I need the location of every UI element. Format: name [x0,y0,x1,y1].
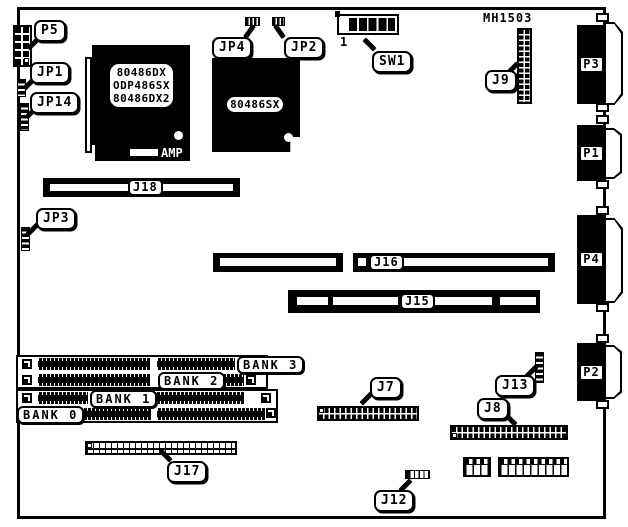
j12-pin1-cell [406,471,410,478]
p1-mount-tab-top [596,115,609,124]
callout-p5: P5 [34,20,66,42]
j18-label: J18 [128,179,163,196]
p3-port-label: P3 [579,56,603,73]
terminal-block-large-body [500,465,567,475]
j16-label: J16 [369,254,404,271]
j17-pin1-marker [87,443,92,448]
simm-clip [246,375,256,385]
p1-mount-tab-bottom [596,180,609,189]
callout-sw1: SW1 [372,51,412,73]
p3-dsub-connector [604,22,623,105]
p4-mount-tab-bottom [596,303,609,312]
terminal-block-small [463,457,491,477]
simm-bar [38,358,150,370]
p2-port: P2 [577,343,606,401]
callout-jp1: JP1 [30,62,70,84]
p3-mount-tab-bottom [596,103,609,112]
cpu1-line-2: ODP486SX [113,79,170,92]
callout-jp2: JP2 [284,37,324,59]
callout-jp4: JP4 [212,37,252,59]
motherboard-diagram: P5 JP1 JP14 80486DX ODP486SX 80486DX2 AM… [0,0,628,527]
simm-clip [22,393,32,403]
p2-dsub-connector [604,345,622,399]
p2-mount-tab-top [596,334,609,343]
callout-j9: J9 [485,70,517,92]
cpu2-pin1-dot [284,133,293,142]
j9-pin-header [517,28,532,104]
j15-stripe-2 [333,297,398,305]
amp-socket-window [130,149,158,156]
j15-label: J15 [400,293,435,310]
p3-mount-tab-top [596,13,609,22]
figure-part-number: MH1503 [483,11,532,25]
simm-clip [261,393,271,403]
simm-bar [157,358,235,370]
bank0-label: BANK 0 [17,406,84,424]
cpu1-line-1: 80486DX [113,66,170,79]
j15-stripe-4 [500,297,536,305]
simm-bar [38,374,150,386]
amp-brand-text: AMP [161,146,183,160]
cpu1-chip-label: 80486DX ODP486SX 80486DX2 [110,64,173,107]
p2-port-label: P2 [579,364,603,381]
j15-stripe-3 [433,297,492,305]
callout-j12: J12 [374,490,414,512]
p3-port: P3 [577,25,606,104]
cpu2-chip-label: 80486SX [227,97,283,112]
simm-clip [22,359,32,369]
callout-jp14: JP14 [30,92,79,114]
simm-bar [157,408,265,420]
cpu1-pin1-dot [174,131,183,140]
p1-port-label: P1 [579,145,603,162]
sw1-pin1-number: 1 [340,35,347,49]
simm-bar [75,408,151,420]
simm-bar [152,392,244,404]
j16-pin1-marker [358,258,366,266]
j7-pin1-marker [319,408,324,413]
simm-bar [38,392,88,404]
callout-jp3: JP3 [36,208,76,230]
simm-clip [22,375,32,385]
slot-j16-left-stripe [220,258,336,266]
j16-slot-stripe [402,258,548,266]
bank3-label: BANK 3 [237,356,304,374]
terminal-block-small-body [465,465,489,475]
p4-port: P4 [577,215,606,304]
p1-port: P1 [577,125,606,181]
p4-mount-tab-top [596,206,609,215]
callout-j7: J7 [370,377,402,399]
terminal-block-large [498,457,569,477]
cpu-socket-lever [85,57,92,153]
p5-pin1-marker [24,58,29,63]
j8-pin1-marker [452,433,457,438]
j15-stripe-1 [297,297,328,305]
cpu1-line-3: 80486DX2 [113,92,170,105]
sw1-dip-switch [337,14,399,35]
p2-mount-tab-bottom [596,400,609,409]
j7-pin-header [317,406,419,421]
p4-port-label: P4 [579,251,603,268]
sw1-switch-cells [349,18,395,31]
amp-socket-bar: AMP [95,145,190,161]
p1-dsub-connector [604,128,622,179]
simm-clip [266,408,276,418]
bank1-label: BANK 1 [90,390,157,408]
bank2-label: BANK 2 [158,372,225,390]
callout-j8: J8 [477,398,509,420]
callout-j13: J13 [495,375,535,397]
callout-j17: J17 [167,461,207,483]
p4-dsub-connector [604,218,623,303]
j8-pin-header [450,425,568,440]
sw1-notch [335,11,340,17]
slot-j16-left [213,253,343,272]
